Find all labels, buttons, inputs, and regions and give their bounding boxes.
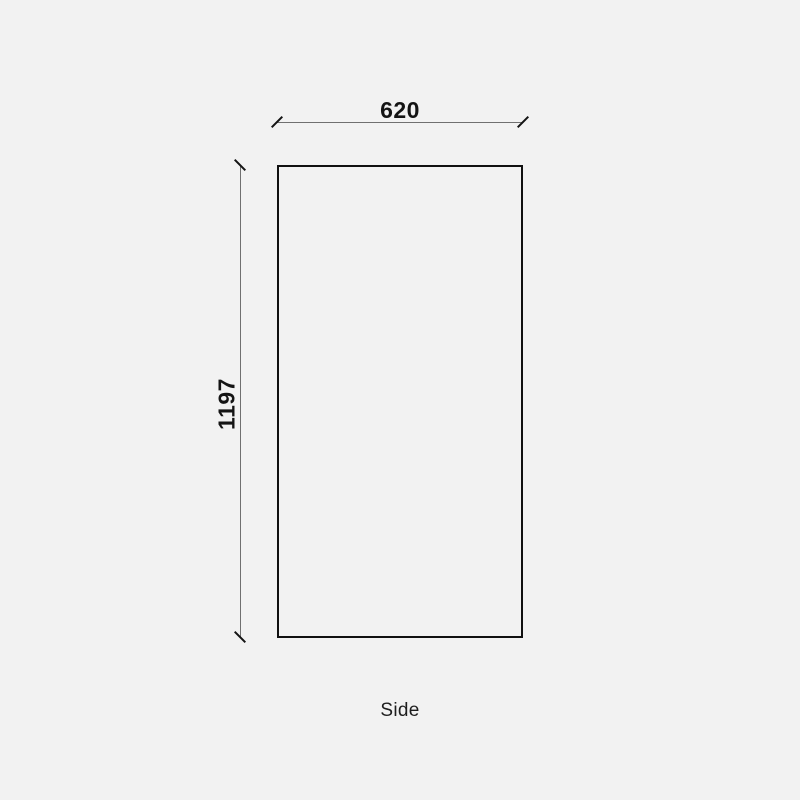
view-label: Side xyxy=(0,700,800,722)
width-dimension-value: 620 xyxy=(277,99,523,122)
height-dimension-value: 1197 xyxy=(216,378,239,430)
panel-outline xyxy=(277,165,523,638)
height-dimension-line xyxy=(240,165,241,637)
dimension-diagram: 620 1197 Side xyxy=(0,0,800,800)
